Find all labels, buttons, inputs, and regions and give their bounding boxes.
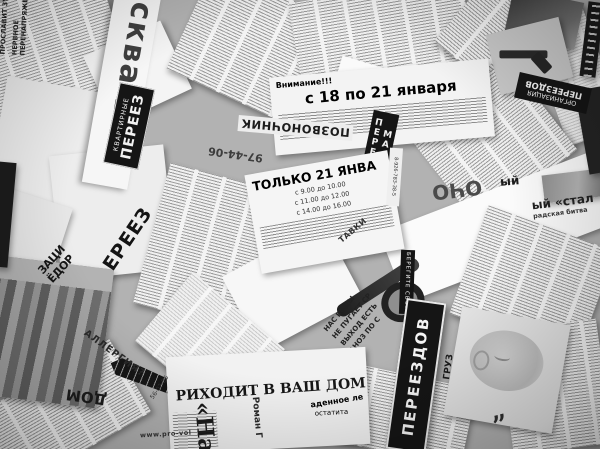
text-fragment: остатита [315, 408, 349, 418]
author-name-fragment: Роман Г [250, 396, 264, 438]
banner-text: ПЕРЕЕЗДОВ [399, 315, 434, 437]
vertical-title: ПРОСЛАВИТ ЗУ [0, 0, 10, 55]
headline-fragment: ый [499, 173, 519, 189]
only-january-ad-scrap: ТОЛЬКО 21 ЯНВА с 9.00 до 10.00 с 11.00 д… [244, 150, 404, 274]
comes-to-your-home-scrap: РИХОДИТ В ВАШ ДОМ «На Роман Г аденное ле… [166, 347, 371, 449]
text-fragment: аденное ле [310, 392, 364, 409]
newspaper-collage-photo: осква в КВАРТИРНЫЕ ПЕРЕЕЗ Внимание!!! с … [0, 0, 600, 449]
phone-number-strip: 8-926-783-38-5 [386, 148, 403, 207]
vertical-title: НЕРВНОЕ ПЕРЕНАПРЯЖЕ [11, 0, 31, 56]
phone-number: 8-926-783-38-5 [390, 157, 399, 196]
phone-number-upside-down: 97-44-06 [207, 144, 263, 165]
face-sketch-fragment [443, 306, 570, 433]
